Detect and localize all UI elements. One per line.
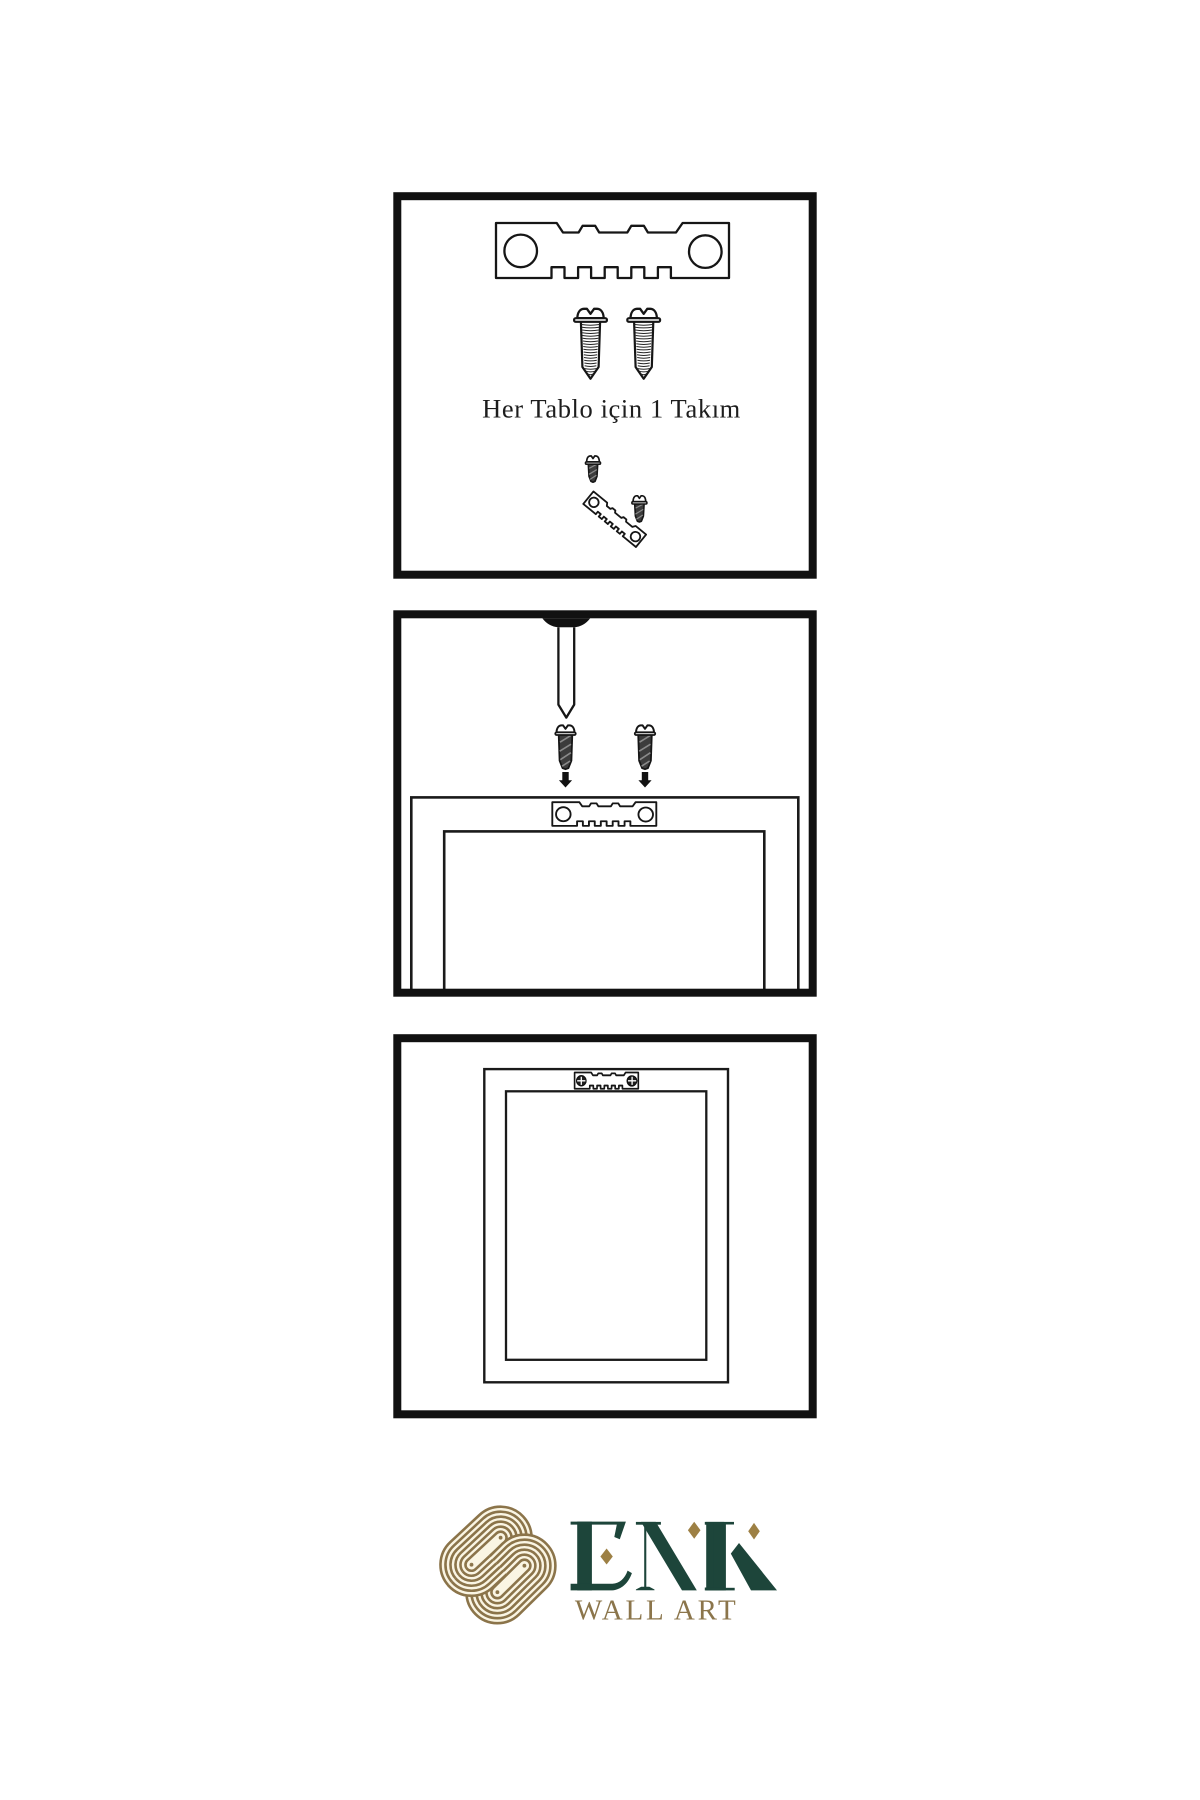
svg-text:Her Tablo için 1 Takım: Her Tablo için 1 Takım <box>482 394 741 424</box>
svg-text:WALL ART: WALL ART <box>575 1595 739 1627</box>
